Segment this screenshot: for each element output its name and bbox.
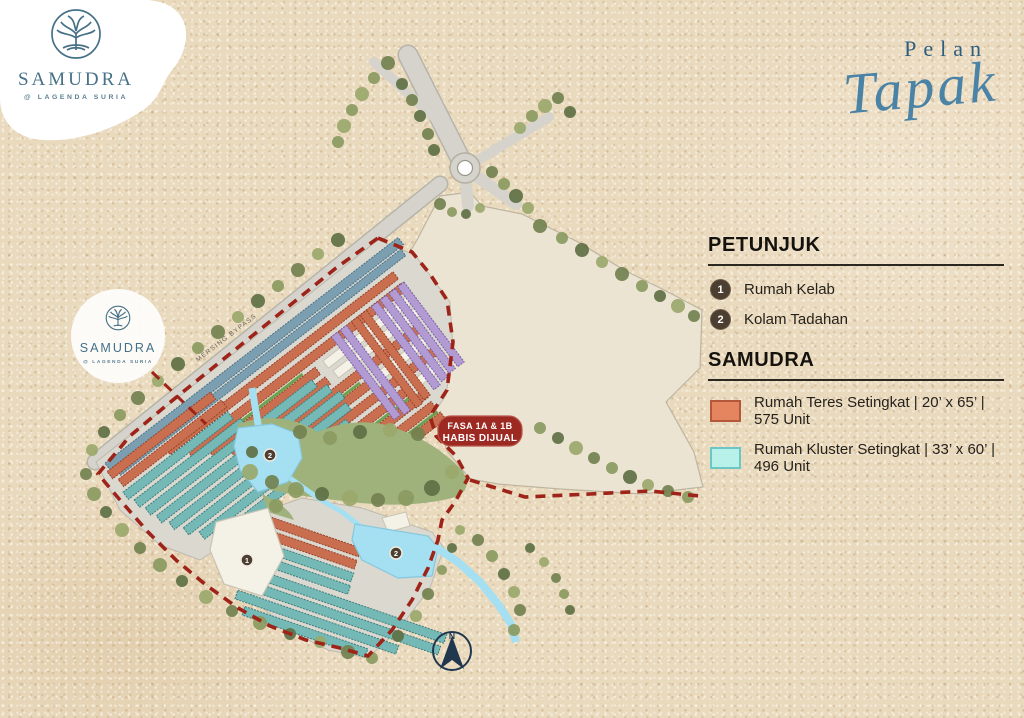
map-logo-circle: SAMUDRA @ LAGENDA SURIA: [71, 289, 165, 383]
tree: [269, 499, 283, 513]
legend-type-label: Rumah Teres Setingkat | 20’ x 65’ | 575 …: [754, 394, 1004, 428]
tree: [176, 575, 188, 587]
tree: [323, 431, 337, 445]
tree: [498, 178, 510, 190]
tree: [688, 310, 700, 322]
tree: [447, 543, 457, 553]
tree: [353, 425, 367, 439]
stream: [434, 546, 516, 642]
tree: [86, 444, 98, 456]
legend-item-rumah-kelab: 1 Rumah Kelab: [710, 279, 1004, 300]
legend-samudra-title: SAMUDRA: [708, 349, 1004, 372]
tree: [455, 525, 465, 535]
tree: [461, 209, 471, 219]
tree: [636, 280, 648, 292]
tree: [508, 586, 520, 598]
tree: [422, 588, 434, 600]
tree: [428, 144, 440, 156]
tree: [131, 391, 145, 405]
map-logo-tagline: @ LAGENDA SURIA: [83, 359, 153, 365]
teres-color-swatch: [710, 400, 741, 422]
legend-item-kolam-tadahan: 2 Kolam Tadahan: [710, 309, 1004, 330]
tree: [331, 233, 345, 247]
tree: [434, 198, 446, 210]
tree: [368, 72, 380, 84]
tree: [575, 243, 589, 257]
tree: [80, 468, 92, 480]
site-plan-poster: MERSING BYPASS 1 2 2 FASA 1A & 1B HABIS …: [0, 0, 1024, 718]
tree: [533, 219, 547, 233]
tree: [293, 425, 307, 439]
tree: [114, 409, 126, 421]
tree: [171, 357, 185, 371]
tree: [100, 506, 112, 518]
map-logo-name: SAMUDRA: [80, 341, 157, 355]
tree: [472, 534, 484, 546]
tree: [514, 604, 526, 616]
badge-line-1: FASA 1A & 1B: [447, 421, 512, 431]
tree: [623, 470, 637, 484]
legend-type-teres: Rumah Teres Setingkat | 20’ x 65’ | 575 …: [710, 394, 1004, 428]
legend-panel: PETUNJUK 1 Rumah Kelab 2 Kolam Tadahan S…: [708, 234, 1004, 488]
tree: [199, 590, 213, 604]
tree: [381, 56, 395, 70]
tree: [265, 475, 279, 489]
tree: [552, 92, 564, 104]
tree: [514, 122, 526, 134]
tree: [291, 263, 305, 277]
tree: [288, 482, 304, 498]
tree: [396, 78, 408, 90]
tree: [134, 542, 146, 554]
sold-out-badge: FASA 1A & 1B HABIS DIJUAL: [438, 416, 522, 446]
tree: [525, 543, 535, 553]
brand-name: SAMUDRA: [0, 69, 152, 91]
tree: [508, 624, 520, 636]
tree: [422, 128, 434, 140]
tree: [346, 104, 358, 116]
tree: [509, 189, 523, 203]
legend-item-label: Rumah Kelab: [744, 281, 835, 298]
tree: [315, 487, 329, 501]
tree: [251, 294, 265, 308]
brand-tagline: @ LAGENDA SURIA: [0, 94, 152, 101]
tree: [642, 479, 654, 491]
tree: [447, 207, 457, 217]
brand-blob: SAMUDRA @ LAGENDA SURIA: [0, 0, 260, 175]
page-title-main: Tapak: [841, 47, 1001, 127]
tree: [355, 87, 369, 101]
tree: [312, 248, 324, 260]
legend-type-kluster: Rumah Kluster Setingkat | 33’ x 60’ | 49…: [710, 441, 1004, 475]
brand-tree-icon: [48, 6, 104, 62]
tree: [498, 568, 510, 580]
tree: [371, 493, 385, 507]
tree: [410, 610, 422, 622]
tree: [569, 441, 583, 455]
tree: [559, 589, 569, 599]
tree: [414, 110, 426, 122]
legend-divider: [708, 379, 1004, 381]
tree: [564, 106, 576, 118]
tree: [332, 136, 344, 148]
tree: [671, 299, 685, 313]
tree: [337, 119, 351, 133]
tree: [272, 280, 284, 292]
tree: [445, 465, 459, 479]
legend-number-badge: 1: [710, 279, 731, 300]
tree: [475, 203, 485, 213]
tree: [522, 202, 534, 214]
svg-text:1: 1: [245, 556, 249, 565]
tree: [153, 558, 167, 572]
legend-number-badge: 2: [710, 309, 731, 330]
tree: [87, 487, 101, 501]
tree: [226, 605, 238, 617]
tree: [486, 550, 498, 562]
tree: [606, 462, 618, 474]
tree: [551, 573, 561, 583]
tree: [565, 605, 575, 615]
tree: [539, 557, 549, 567]
legend-type-label: Rumah Kluster Setingkat | 33’ x 60’ | 49…: [754, 441, 1004, 475]
kluster-color-swatch: [710, 447, 741, 469]
badge-line-2: HABIS DIJUAL: [443, 433, 518, 444]
tree: [424, 480, 440, 496]
tree: [115, 523, 129, 537]
tree: [98, 426, 110, 438]
tree: [534, 422, 546, 434]
tree: [406, 94, 418, 106]
svg-text:2: 2: [394, 549, 398, 558]
brand-lockup: SAMUDRA @ LAGENDA SURIA: [0, 6, 152, 101]
tree: [552, 432, 564, 444]
tree: [246, 446, 258, 458]
svg-text:2: 2: [268, 451, 272, 460]
tree: [437, 565, 447, 575]
tree: [556, 232, 568, 244]
tree: [411, 427, 425, 441]
tree: [596, 256, 608, 268]
tree: [383, 423, 397, 437]
tree: [538, 99, 552, 113]
tree: [654, 290, 666, 302]
tree: [526, 110, 538, 122]
tree: [588, 452, 600, 464]
legend-item-label: Kolam Tadahan: [744, 311, 848, 328]
tree: [242, 464, 258, 480]
legend-petunjuk-title: PETUNJUK: [708, 234, 1004, 257]
tree: [392, 630, 404, 642]
legend-divider: [708, 264, 1004, 266]
tree: [398, 490, 414, 506]
tree: [615, 267, 629, 281]
tree: [486, 166, 498, 178]
tree: [342, 490, 358, 506]
svg-text:N: N: [449, 631, 455, 641]
